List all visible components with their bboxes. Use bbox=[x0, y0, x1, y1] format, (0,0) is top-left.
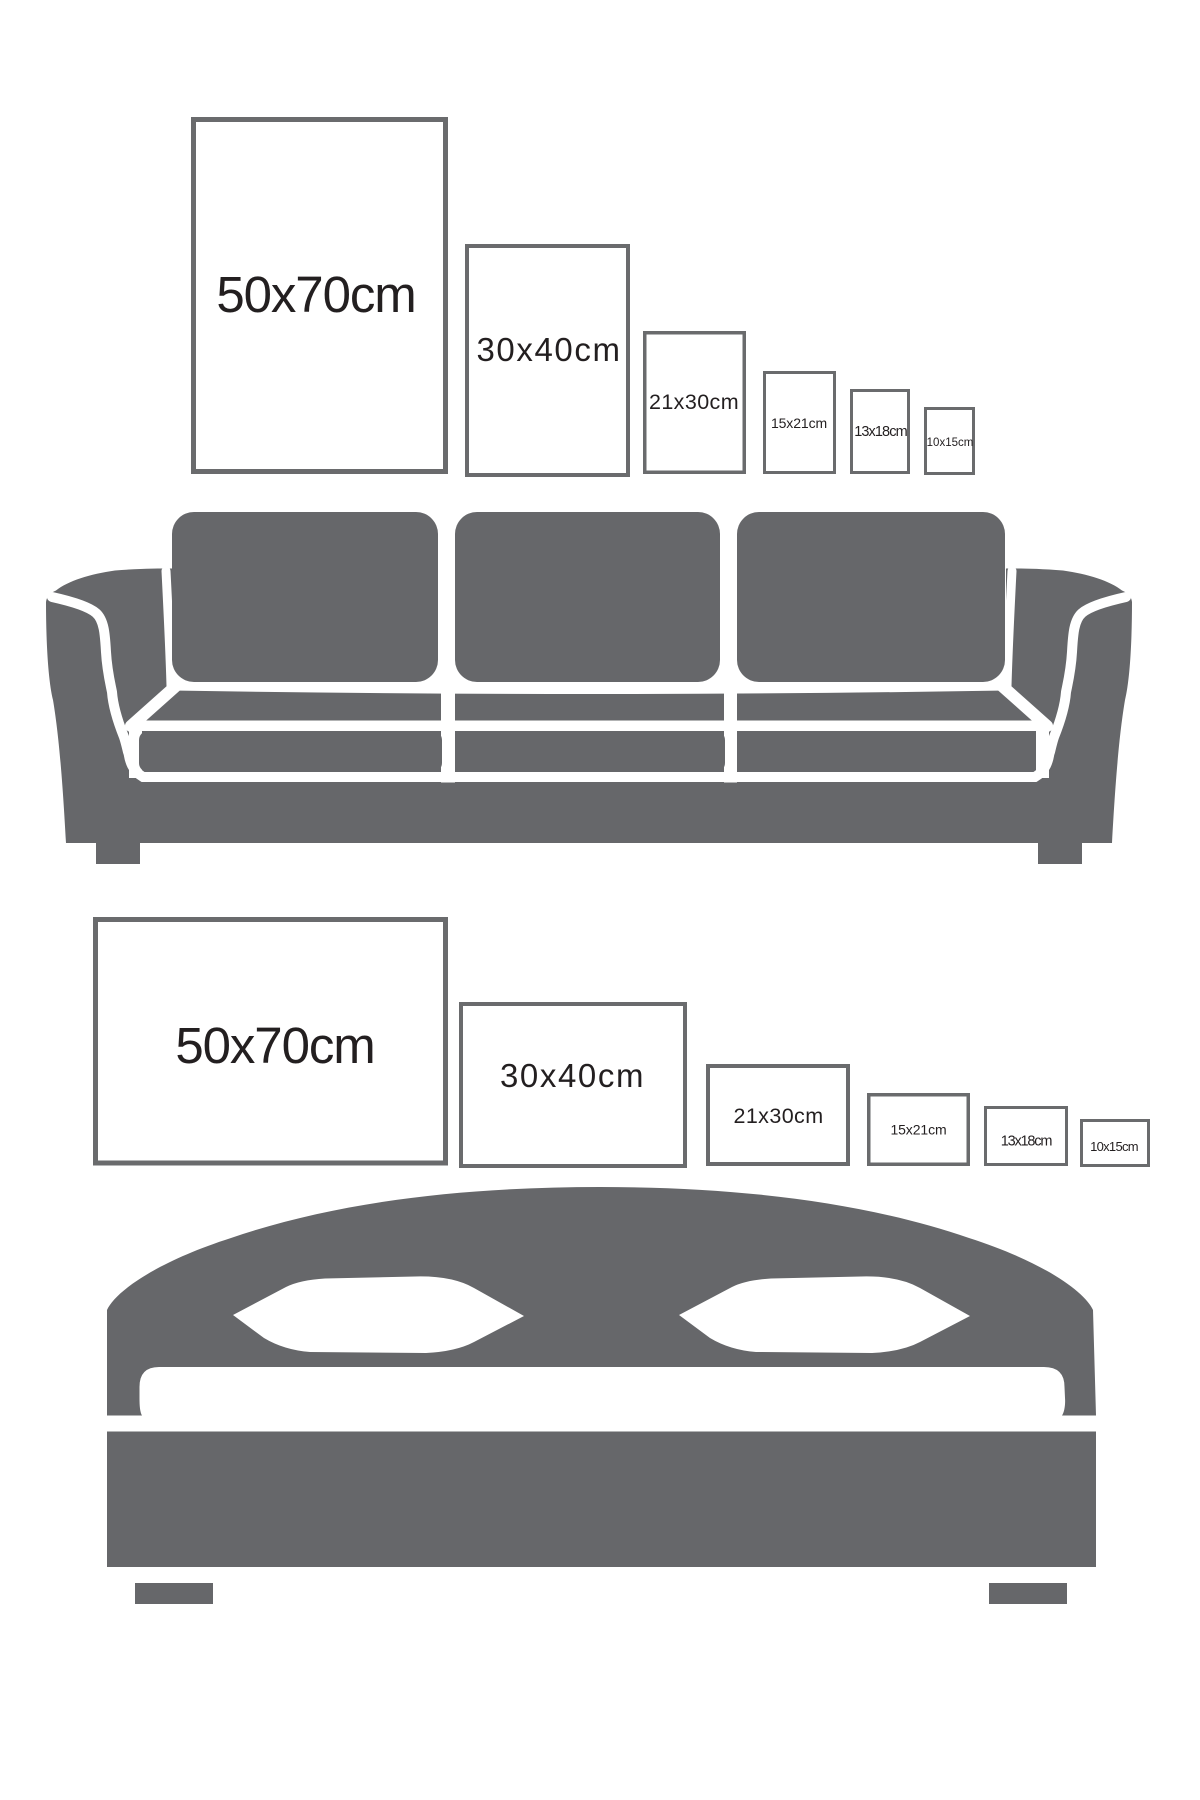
svg-text:10x15cm: 10x15cm bbox=[1090, 1139, 1138, 1154]
svg-text:15x21cm: 15x21cm bbox=[890, 1122, 946, 1138]
svg-text:50x70cm: 50x70cm bbox=[175, 1017, 374, 1074]
svg-text:15x21cm: 15x21cm bbox=[771, 415, 827, 431]
svg-text:21x30cm: 21x30cm bbox=[733, 1104, 823, 1128]
svg-text:13x18cm: 13x18cm bbox=[854, 424, 907, 440]
svg-text:10x15cm: 10x15cm bbox=[927, 437, 974, 449]
svg-text:30x40cm: 30x40cm bbox=[500, 1057, 645, 1094]
svg-text:50x70cm: 50x70cm bbox=[216, 266, 415, 323]
svg-text:30x40cm: 30x40cm bbox=[476, 331, 621, 368]
svg-text:21x30cm: 21x30cm bbox=[649, 390, 739, 414]
svg-text:13x18cm: 13x18cm bbox=[1001, 1134, 1053, 1150]
